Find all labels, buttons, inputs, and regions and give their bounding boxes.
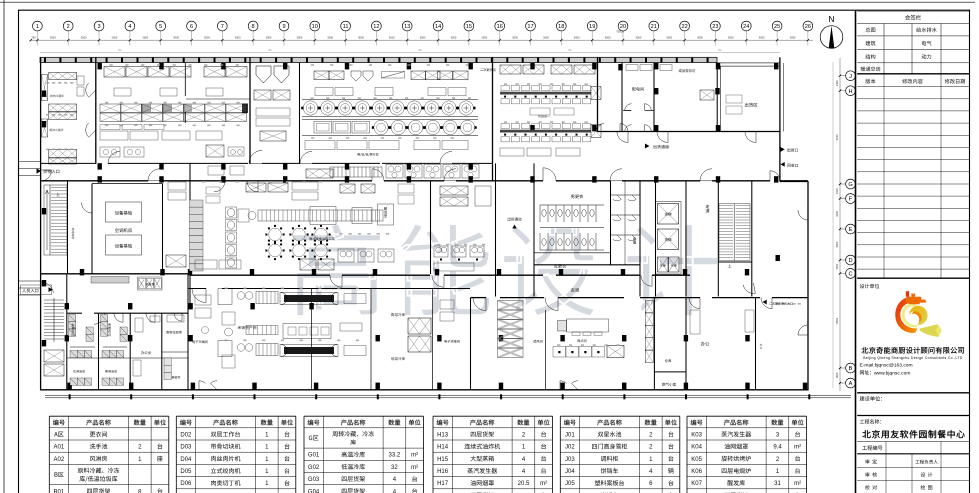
svg-text:75000: 75000: [616, 30, 624, 34]
svg-text:13: 13: [404, 24, 410, 30]
svg-text:K03: K03: [691, 432, 702, 438]
svg-text:3000: 3000: [327, 36, 333, 40]
svg-text:H13: H13: [437, 432, 449, 438]
svg-text:K04: K04: [691, 445, 702, 451]
svg-text:K05: K05: [691, 457, 702, 463]
svg-text:3000: 3000: [420, 36, 426, 40]
svg-text:9.4: 9.4: [773, 445, 782, 451]
svg-text:m²: m²: [411, 453, 418, 459]
svg-text:3000: 3000: [574, 36, 580, 40]
svg-text:3000: 3000: [173, 36, 179, 40]
svg-text:12: 12: [373, 24, 379, 30]
svg-text:3000: 3000: [389, 36, 395, 40]
svg-text:33.2: 33.2: [389, 453, 401, 459]
svg-text:D: D: [848, 258, 852, 264]
svg-text:1650: 1650: [835, 372, 839, 378]
svg-text:E: E: [849, 227, 853, 233]
svg-text:8400: 8400: [835, 317, 839, 323]
svg-text:22: 22: [681, 24, 687, 30]
svg-text:H14: H14: [437, 445, 449, 451]
svg-text:21: 21: [651, 24, 657, 30]
svg-text:8: 8: [252, 24, 255, 30]
svg-text:J01: J01: [565, 432, 575, 438]
svg-text:H17: H17: [437, 481, 449, 487]
svg-text:3000: 3000: [835, 210, 839, 216]
svg-text:3000: 3000: [512, 36, 518, 40]
svg-text:3000: 3000: [697, 36, 703, 40]
svg-text:16: 16: [497, 24, 503, 30]
svg-text:m²: m²: [411, 465, 418, 471]
svg-text:26: 26: [805, 24, 811, 30]
svg-text:B01: B01: [54, 489, 65, 493]
svg-text:1500: 1500: [835, 188, 839, 194]
svg-text:17: 17: [527, 24, 533, 30]
svg-text:F: F: [849, 197, 853, 203]
svg-text:3000: 3000: [81, 36, 87, 40]
svg-text:3000: 3000: [235, 36, 241, 40]
svg-text:3000: 3000: [666, 36, 672, 40]
svg-text:3: 3: [97, 24, 100, 30]
svg-text:23: 23: [712, 24, 718, 30]
svg-text:D02: D02: [180, 432, 192, 438]
svg-text:C: C: [848, 272, 852, 278]
svg-text:N: N: [828, 14, 834, 24]
svg-text:3000: 3000: [481, 36, 487, 40]
svg-text:G03: G03: [308, 477, 320, 483]
svg-text:9000: 9000: [835, 134, 839, 140]
svg-text:6: 6: [190, 24, 193, 30]
svg-text:J03: J03: [565, 457, 575, 463]
svg-text:m²: m²: [794, 481, 801, 487]
svg-text:20.5: 20.5: [518, 481, 530, 487]
svg-text:14: 14: [435, 24, 441, 30]
svg-text:5: 5: [159, 24, 162, 30]
svg-text:3000: 3000: [50, 36, 56, 40]
svg-text:m²: m²: [540, 481, 547, 487]
svg-text:25: 25: [774, 24, 780, 30]
svg-text:4: 4: [128, 24, 131, 30]
svg-text:3000: 3000: [358, 36, 364, 40]
svg-text:1350: 1350: [835, 263, 839, 269]
svg-text:A02: A02: [54, 457, 65, 463]
svg-text:B: B: [849, 366, 853, 372]
svg-text:J04: J04: [565, 469, 575, 475]
svg-text:G: G: [848, 182, 852, 188]
svg-text:15: 15: [466, 24, 472, 30]
svg-text:24: 24: [743, 24, 749, 30]
svg-text:H16: H16: [437, 469, 449, 475]
svg-text:J02: J02: [565, 445, 575, 451]
svg-text:7: 7: [221, 24, 224, 30]
svg-text:D05: D05: [180, 469, 192, 475]
svg-text:3000: 3000: [112, 36, 118, 40]
svg-text:K07: K07: [691, 481, 702, 487]
svg-text:m²: m²: [794, 445, 801, 451]
svg-text:Beijing Qineng Shangchu Design: Beijing Qineng Shangchu Design Consultan…: [863, 356, 963, 360]
svg-text:D04: D04: [180, 457, 192, 463]
svg-text:D06: D06: [180, 481, 192, 487]
svg-text:A01: A01: [54, 445, 65, 451]
svg-text:www.bjqnsc.com: www.bjqnsc.com: [874, 370, 910, 376]
svg-text:3000: 3000: [605, 36, 611, 40]
svg-text:K06: K06: [691, 469, 702, 475]
svg-text:3000: 3000: [297, 36, 303, 40]
svg-text:3000: 3000: [728, 36, 734, 40]
svg-text:11: 11: [343, 24, 349, 30]
svg-text:3000: 3000: [543, 36, 549, 40]
svg-text:3000: 3000: [759, 36, 765, 40]
svg-text:3000: 3000: [204, 36, 210, 40]
svg-text:G01: G01: [308, 453, 320, 459]
svg-text:3000: 3000: [636, 36, 642, 40]
svg-text:1: 1: [36, 24, 39, 30]
svg-text:19: 19: [589, 24, 595, 30]
svg-text:3000: 3000: [266, 36, 272, 40]
svg-text:3000: 3000: [835, 241, 839, 247]
svg-text:9: 9: [282, 24, 285, 30]
svg-text:3000: 3000: [451, 36, 457, 40]
svg-text:E-mail:bjqnsc@163.com: E-mail:bjqnsc@163.com: [860, 363, 913, 369]
svg-text:A: A: [849, 381, 853, 387]
svg-text:31: 31: [774, 481, 781, 487]
svg-text:2400: 2400: [835, 80, 839, 86]
svg-text:G02: G02: [308, 465, 320, 471]
svg-text:750: 750: [31, 36, 36, 40]
svg-text:J: J: [849, 74, 852, 80]
svg-text:2: 2: [67, 24, 70, 30]
svg-text:3000: 3000: [142, 36, 148, 40]
svg-text:H: H: [848, 89, 852, 95]
svg-text:J05: J05: [565, 481, 575, 487]
svg-text:3000: 3000: [790, 36, 796, 40]
svg-text:18: 18: [558, 24, 564, 30]
svg-text:D03: D03: [180, 445, 192, 451]
svg-text:H15: H15: [437, 457, 449, 463]
svg-text:32: 32: [391, 465, 398, 471]
svg-text:G04: G04: [308, 489, 320, 493]
svg-text:10: 10: [312, 24, 318, 30]
